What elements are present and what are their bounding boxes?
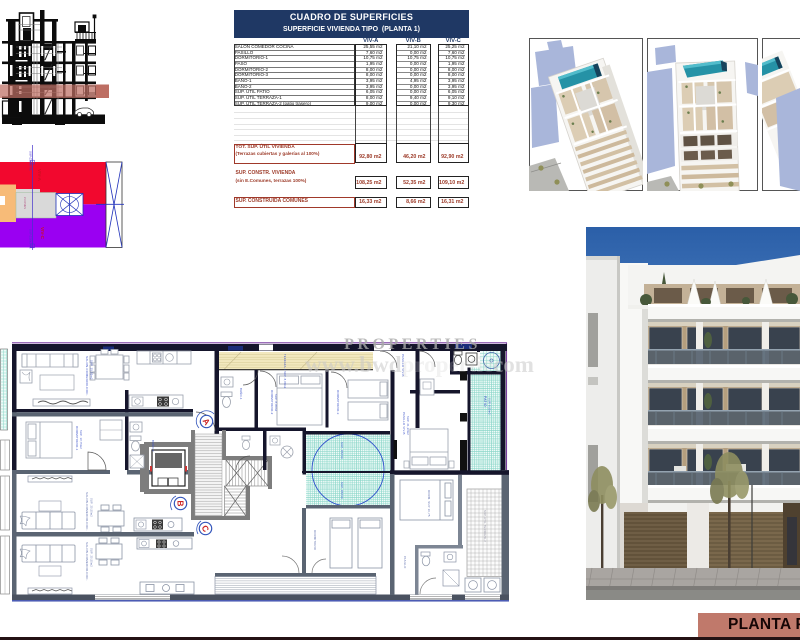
svg-text:BAÑO-1: BAÑO-1 bbox=[239, 388, 244, 400]
svg-text:DORM. SUP 10,75: DORM. SUP 10,75 bbox=[427, 490, 431, 517]
svg-text:SUP.UTIL TERRAZA-2: SUP.UTIL TERRAZA-2 bbox=[483, 510, 487, 542]
svg-text:SUP. 25,55m2: SUP. 25,55m2 bbox=[90, 498, 94, 517]
svg-text:SALON.COMEDOR.COC.: SALON.COMEDOR.COC. bbox=[85, 542, 89, 581]
svg-text:DORMITORIO: DORMITORIO bbox=[313, 530, 317, 551]
svg-text:SUP.CONSTR.: SUP.CONSTR. bbox=[29, 229, 33, 249]
svg-text:BAÑO-2: BAÑO-2 bbox=[151, 440, 156, 452]
svg-text:SUP. 25,55m2: SUP. 25,55m2 bbox=[90, 360, 94, 380]
svg-text:Z.COMUN: Z.COMUN bbox=[23, 197, 27, 209]
svg-text:SALON.COMEDOR.COC.: SALON.COMEDOR.COC. bbox=[85, 356, 89, 396]
svg-text:SUP.CONSTR.: SUP.CONSTR. bbox=[29, 151, 33, 171]
svg-text:VIV-C: VIV-C bbox=[40, 227, 45, 240]
svg-text:SUP. 21,10m2: SUP. 21,10m2 bbox=[406, 416, 410, 435]
svg-text:VIV-A: VIV-A bbox=[37, 169, 42, 182]
svg-text:SUP. 6,05m2: SUP. 6,05m2 bbox=[488, 398, 491, 415]
svg-text:SUP. PATIO: SUP. PATIO bbox=[340, 442, 344, 460]
svg-text:SUP. 25,55m2: SUP. 25,55m2 bbox=[90, 548, 94, 567]
svg-text:PASILLO: PASILLO bbox=[403, 556, 407, 568]
svg-text:PATIO: PATIO bbox=[483, 396, 487, 407]
svg-text:SUP. 10,75m2: SUP. 10,75m2 bbox=[79, 430, 83, 449]
svg-text:DORMITORIO-1: DORMITORIO-1 bbox=[75, 426, 79, 451]
svg-text:SUP. PATIO: SUP. PATIO bbox=[340, 482, 344, 500]
svg-text:DORMITORIO-3: DORMITORIO-3 bbox=[336, 390, 340, 415]
svg-text:PASILLO VIV-B: PASILLO VIV-B bbox=[402, 412, 406, 435]
svg-text:SUP. 8,00m2: SUP. 8,00m2 bbox=[274, 394, 278, 412]
svg-text:TERRAZA-1 SUP. 8,00m2: TERRAZA-1 SUP. 8,00m2 bbox=[283, 354, 287, 389]
svg-text:DORMITORIO-2: DORMITORIO-2 bbox=[270, 390, 274, 415]
svg-text:B: B bbox=[175, 500, 185, 506]
svg-text:SALON.COMEDOR.COC.: SALON.COMEDOR.COC. bbox=[85, 492, 89, 531]
